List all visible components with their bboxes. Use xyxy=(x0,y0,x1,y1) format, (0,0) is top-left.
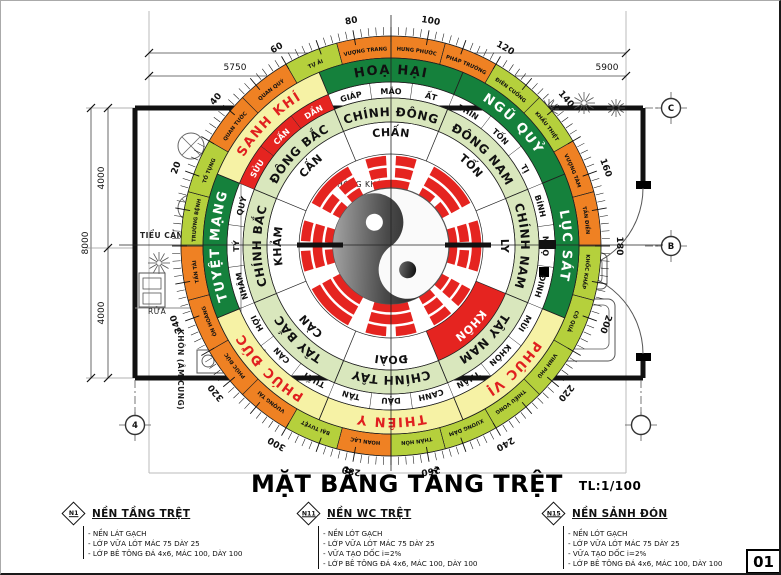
note-block-wc: N11 NỀN WC TRỆT NỀN LÓT GẠCHLỚP VỮA LÓT … xyxy=(296,501,531,569)
note-item: NỀN LÓT GẠCH xyxy=(568,529,776,539)
grid-bubble-3 xyxy=(625,380,657,441)
trigram-label: KHẢM xyxy=(270,225,286,266)
wash-label: RỬA xyxy=(148,307,167,316)
degree-label: 200 xyxy=(597,313,613,334)
note-title: NỀN TẦNG TRỆT xyxy=(92,508,190,520)
grid-bubble-C: C xyxy=(645,92,687,124)
degree-label: 80 xyxy=(344,15,358,27)
degree-label: 300 xyxy=(266,434,287,452)
note-item: LỚP BÊ TÔNG ĐÁ 4x6, MÁC 100, DÀY 100 xyxy=(88,549,296,559)
degree-label: 20 xyxy=(170,160,184,175)
note-item: LỚP VỮA LÓT MÁC 75 DÀY 25 xyxy=(88,539,296,549)
sheet-number: 01 xyxy=(753,553,774,571)
mountain-label: TỊ xyxy=(519,163,531,175)
svg-text:C: C xyxy=(668,104,674,114)
note-items: NỀN LÓT GẠCHLỚP VỮA LÓT MÁC 75 DÀY 25VỮA… xyxy=(563,526,776,569)
dim-left-0: 4000 xyxy=(97,166,107,189)
dim-left-1: 8000 xyxy=(81,231,91,254)
degree-label: 160 xyxy=(597,157,613,178)
note-item: LỚP VỮA LÓT MÁC 75 DÀY 25 xyxy=(568,539,776,549)
degree-label: 240 xyxy=(494,434,515,452)
note-item: VỮA TẠO DỐC i=2% xyxy=(323,549,531,559)
note-title: NỀN WC TRỆT xyxy=(327,508,411,520)
grid-bubble-B: B xyxy=(645,230,687,262)
note-item: NỀN LÁT GẠCH xyxy=(88,529,296,539)
title-scale: TL:1/100 xyxy=(579,479,641,493)
degree-label: 180 xyxy=(614,236,624,255)
trigram-label: LY xyxy=(498,239,511,254)
grid-bubble-4: 4 xyxy=(119,380,151,441)
note-title: NỀN SẢNH ĐÓN xyxy=(572,508,667,520)
note-block-floor: N1 NỀN TẦNG TRỆT NỀN LÁT GẠCHLỚP VỮA LÓT… xyxy=(61,501,296,559)
dim-top-right: 5900 xyxy=(596,63,619,73)
note-item: VỮA TẠO DỐC i=2% xyxy=(568,549,776,559)
tree-symbol xyxy=(178,133,204,159)
note-tag-diamond: N1 xyxy=(61,501,85,525)
degree-label: 340 xyxy=(169,313,185,334)
sheet-number-box: 01 xyxy=(746,549,781,574)
note-item: NỀN LÓT GẠCH xyxy=(323,529,531,539)
dim-top-left: 5750 xyxy=(224,63,247,73)
title-text: MẶT BẰNG TẦNG TRỆT xyxy=(251,470,563,498)
degree-label: 320 xyxy=(206,382,226,403)
page-title: MẶT BẰNG TẦNG TRỆTTL:1/100 xyxy=(251,470,641,498)
sink xyxy=(139,273,165,307)
note-item: LỚP VỮA LÓT MÁC 75 DÀY 25 xyxy=(323,539,531,549)
door-jamb xyxy=(636,353,651,361)
plant-symbol xyxy=(573,92,595,114)
svg-text:B: B xyxy=(668,242,674,252)
drawing-sheet: 57505900400080004000TIỂU CẢNHRỬAPHÒNG KH… xyxy=(0,0,781,575)
note-block-lobby: N15 NỀN SẢNH ĐÓN NỀN LÓT GẠCHLỚP VỮA LÓT… xyxy=(541,501,776,569)
mountain-label: TÝ xyxy=(230,240,241,252)
note-tag-diamond: N15 xyxy=(541,501,565,525)
degree-label: 100 xyxy=(421,15,441,28)
mountain-label: ẤT xyxy=(424,88,438,103)
degree-label: 120 xyxy=(494,40,515,58)
note-items: NỀN LÁT GẠCHLỚP VỮA LÓT MÁC 75 DÀY 25LỚP… xyxy=(83,526,296,559)
section-flag xyxy=(539,240,556,249)
degree-label: 220 xyxy=(556,382,576,403)
note-item: LỚP BÊ TÔNG ĐÁ 4x6, MÁC 100, DÀY 100 xyxy=(323,559,531,569)
door-jamb xyxy=(636,181,651,189)
degree-label: 60 xyxy=(269,41,285,56)
note-item: LỚP BÊ TÔNG ĐÁ 4x6, MÁC 100, DÀY 100 xyxy=(568,559,776,569)
corner-sector-label: KHÔN (ÂM CUNG) xyxy=(176,329,185,410)
plant-symbol xyxy=(148,252,170,274)
dim-left-2: 4000 xyxy=(97,301,107,324)
degree-label: 40 xyxy=(208,91,224,107)
svg-text:4: 4 xyxy=(132,421,138,431)
note-items: NỀN LÓT GẠCHLỚP VỮA LÓT MÁC 75 DÀY 25VỮA… xyxy=(318,526,531,569)
note-tag-diamond: N11 xyxy=(296,501,320,525)
